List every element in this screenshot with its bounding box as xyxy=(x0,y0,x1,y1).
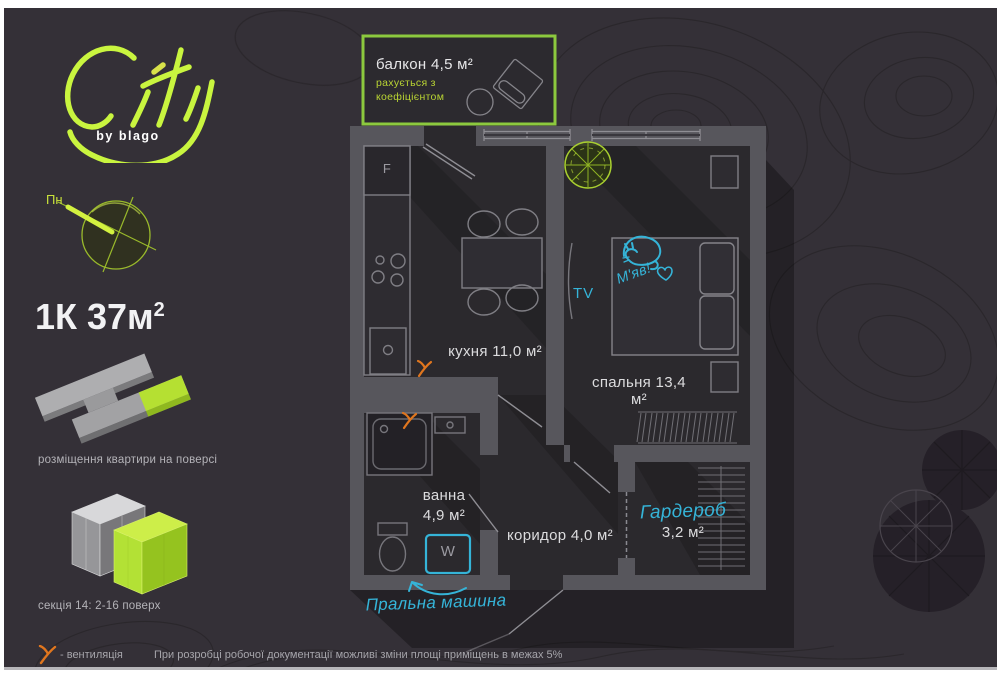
ventilation-legend-icon xyxy=(38,645,58,665)
fridge-label: F xyxy=(376,161,398,176)
balcony-note-line1: рахується з xyxy=(376,77,444,91)
title-sup: 2 xyxy=(154,299,165,321)
building-section-diagram xyxy=(44,478,204,596)
floor-plan-area: балкон 4,5 м² рахується з коефіцієнтом F… xyxy=(348,30,798,655)
page-canvas: by blago Пн 1К 37м2 розміщення квартири … xyxy=(4,8,997,670)
tv-label: TV xyxy=(573,285,594,302)
balcony-note-line2: коефіцієнтом xyxy=(376,91,444,105)
site-trees xyxy=(873,430,997,612)
ventilation-legend-label: - вентиляція xyxy=(60,649,123,661)
brand-sub-label: by blago xyxy=(28,129,228,143)
floor-plan-drawing xyxy=(348,30,798,655)
kitchen-label: кухня 11,0 м² xyxy=(440,343,550,360)
wardrobe-name: Гардероб xyxy=(631,499,736,525)
nightstand xyxy=(711,156,738,188)
floor-plan-caption: розміщення квартири на поверсі xyxy=(38,454,258,466)
section-caption: секція 14: 2-16 поверх xyxy=(38,600,238,612)
dining-table xyxy=(462,238,542,288)
washer-letter: W xyxy=(428,543,468,560)
north-label: Пн xyxy=(46,192,63,207)
apartment-area-title: 1К 37м2 xyxy=(35,296,165,338)
nightstand xyxy=(711,362,738,392)
city-logo-script xyxy=(68,48,212,163)
bedroom-label: спальня 13,4 м² xyxy=(583,374,695,408)
floor-plate-iso xyxy=(35,350,191,450)
compass-icon: Пн xyxy=(40,180,180,292)
bathroom-area: 4,9 м² xyxy=(404,506,484,526)
bathroom-name: ванна xyxy=(404,486,484,506)
logo-i-dot xyxy=(154,65,163,72)
floor-plate-diagram xyxy=(28,350,218,450)
plant-icon xyxy=(565,142,611,188)
corridor-label: коридор 4,0 м² xyxy=(496,527,624,544)
wardrobe-area: 3,2 м² xyxy=(631,524,735,541)
balcony-label: балкон 4,5 м² xyxy=(376,56,473,73)
title-main: 1К 37м xyxy=(35,296,154,337)
bathtub xyxy=(367,413,432,475)
